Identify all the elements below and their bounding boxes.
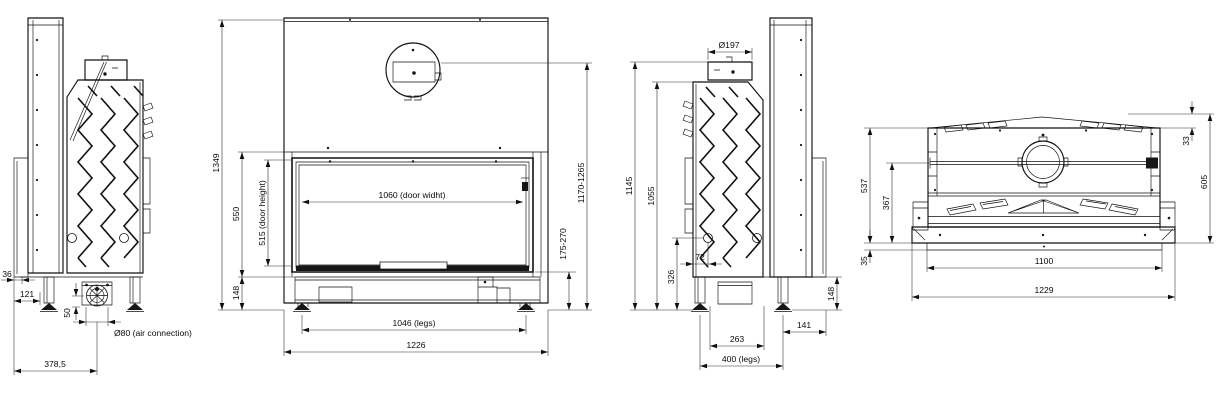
dim-label-bracket-offset: 36 <box>2 269 12 279</box>
view-top: 335373673560511001229 <box>859 101 1214 301</box>
dim-label-air-connection: Ø80 (air connection) <box>114 328 192 338</box>
dim-label-firebox-height: 550 <box>231 207 241 222</box>
view-front: 1349550148515 (door height)1060 (door wi… <box>211 18 592 356</box>
dim-label-base-height: 148 <box>826 287 836 302</box>
wall-bracket <box>14 158 28 277</box>
top-body <box>928 117 1160 227</box>
dim-label-bracket-depth: 121 <box>20 289 35 299</box>
technical-drawing-canvas: 3612150Ø80 (air connection)378,5 <box>0 0 1226 407</box>
dim-label-air-height: 50 <box>62 308 72 318</box>
dim-label-base-height-range: 175-270 <box>558 228 568 260</box>
dim-label-depth-inner: 263 <box>730 334 745 344</box>
dim-label-inner-width: 1100 <box>1035 256 1054 266</box>
legs-and-feet <box>691 277 792 312</box>
dim-label-body-height: 1055 <box>646 186 656 205</box>
ash-box <box>718 282 752 304</box>
top-vent-strips <box>944 121 1143 132</box>
damper-rod <box>930 158 1146 169</box>
air-connection-spigot <box>82 282 112 306</box>
base-plinth <box>293 277 540 312</box>
firebox-body <box>20 56 153 277</box>
technical-drawing: 3612150Ø80 (air connection)378,5 <box>0 0 1226 407</box>
extension-lines <box>864 114 1214 301</box>
dim-label-legs-width: 1046 (legs) <box>393 318 436 328</box>
dim-label-flue-diameter: Ø197 <box>718 40 739 50</box>
dim-label-base-lip: 35 <box>859 256 869 266</box>
door-handle <box>380 262 447 269</box>
view-left-side: 3612150Ø80 (air connection)378,5 <box>1 18 192 375</box>
dim-label-total-width: 1229 <box>1034 285 1053 295</box>
dim-label-door-width: 1060 (door widht) <box>379 190 446 200</box>
dim-label-flue-center-depth: 367 <box>881 196 891 211</box>
door-guide-panel <box>770 18 812 277</box>
door <box>292 158 533 272</box>
heat-exchanger-fins <box>78 86 143 267</box>
dim-label-base-height: 148 <box>231 286 241 301</box>
dim-label-total-height: 1349 <box>211 153 221 172</box>
convection-vent-plates <box>947 199 1138 215</box>
firebox-body <box>683 82 826 277</box>
dim-label-total-depth: 605 <box>1199 175 1209 190</box>
dim-label-height-to-flue: 1145 <box>624 177 634 196</box>
flue-collar <box>708 57 752 80</box>
flue-opening <box>930 134 1158 187</box>
dim-label-body-depth: 537 <box>859 179 869 194</box>
heat-exchanger-fins <box>700 87 760 267</box>
wall-bracket <box>812 158 826 277</box>
door-lock <box>522 182 528 191</box>
door-guide-panel <box>28 18 63 273</box>
extension-lines <box>218 20 592 356</box>
front-body <box>284 18 548 303</box>
dim-label-rear-offset: 141 <box>797 320 812 330</box>
dim-label-total-depth: 378,5 <box>44 359 66 369</box>
dim-label-door-height: 515 (door height) <box>257 180 267 246</box>
view-right-side: Ø1971145105532672148141263400 (legs) <box>624 18 842 370</box>
dim-label-flue-height-range: 1170-1265 <box>576 163 586 204</box>
flue-damper-detail <box>386 43 441 100</box>
dim-label-top-strip: 33 <box>1181 136 1191 146</box>
dim-label-total-width: 1226 <box>406 340 425 350</box>
dim-label-air-inlet-height: 326 <box>666 270 676 285</box>
dim-label-air-inlet-offset: 72 <box>695 252 705 262</box>
dim-label-legs-depth: 400 (legs) <box>722 354 760 364</box>
